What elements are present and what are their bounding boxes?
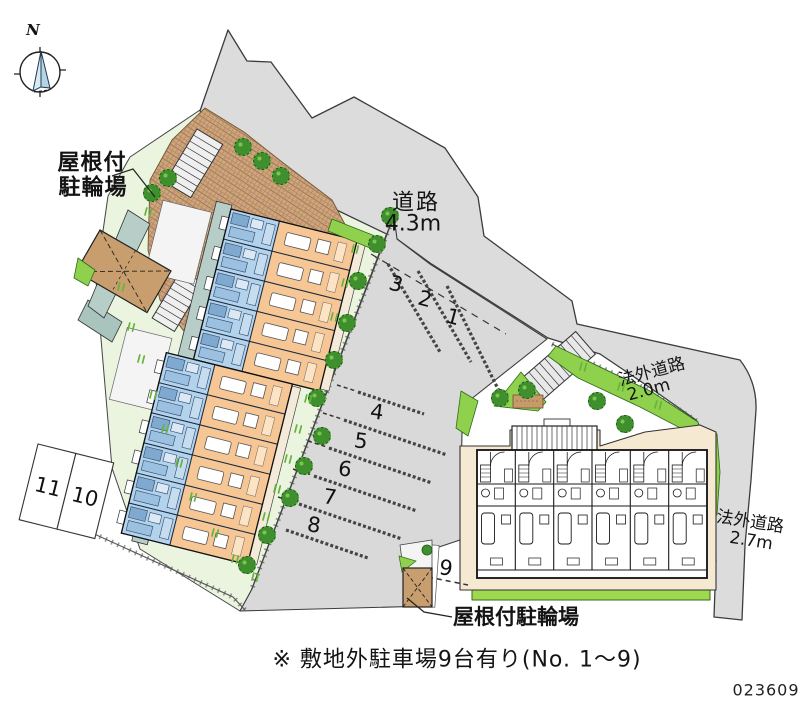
bike-shelter-top-label-line1: 屋根付 [57, 151, 126, 174]
site-plan: N 屋根付 駐輪場 道路 4.3m 法外道路 2.0m 法外道路 2.7m 屋根… [0, 0, 800, 727]
right-building [477, 450, 707, 578]
bicycle-shed-south [399, 540, 432, 607]
right-building-stairs [512, 419, 597, 451]
compass-north-label: N [26, 23, 40, 39]
compass [14, 47, 66, 97]
road-width-label: 4.3m [385, 212, 441, 235]
note-label: ※ 敷地外駐車場9台有り(No. 1～9) [272, 648, 641, 671]
bike-shelter-bottom-label: 屋根付駐輪場 [453, 606, 579, 628]
plan-number: 023609 [732, 683, 799, 700]
bike-shelter-top-label-line2: 駐輪場 [58, 176, 127, 199]
